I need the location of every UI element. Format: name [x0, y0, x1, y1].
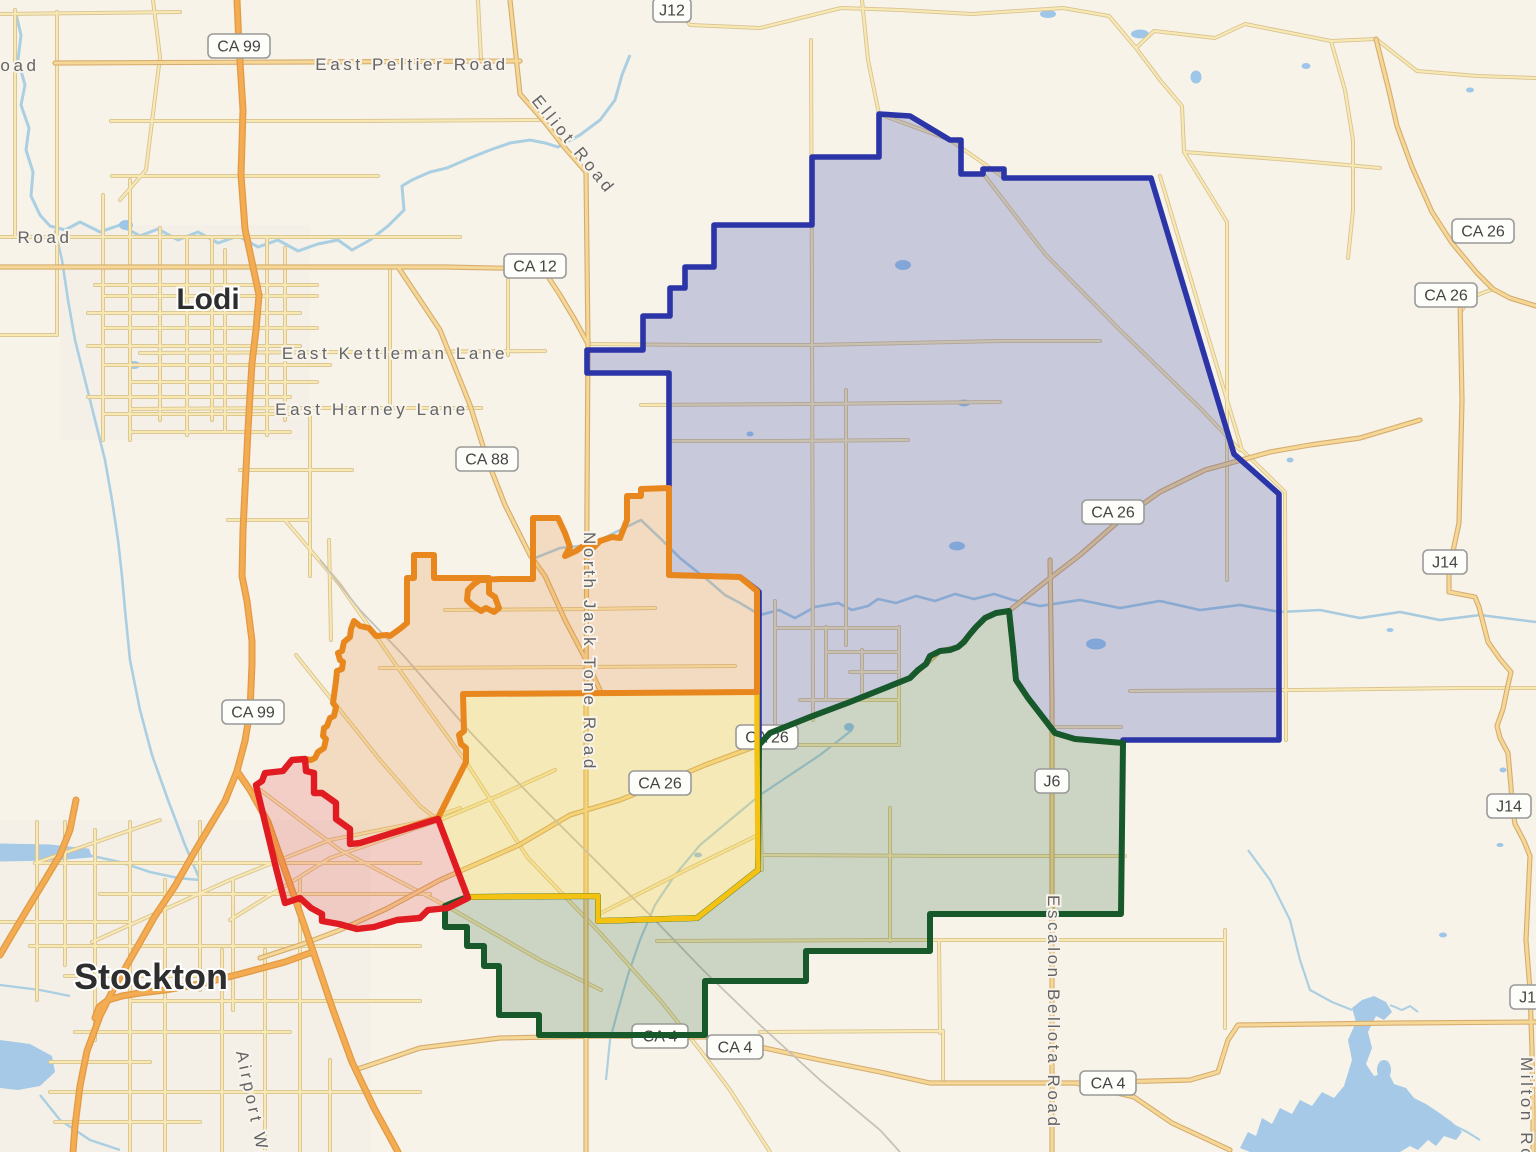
svg-text:Escalon Bellota Road: Escalon Bellota Road	[1044, 895, 1063, 1130]
svg-text:Road: Road	[17, 228, 72, 247]
svg-text:CA 26: CA 26	[1091, 505, 1135, 522]
svg-text:J12: J12	[659, 3, 685, 20]
svg-text:J6: J6	[1044, 774, 1061, 791]
svg-text:North Jack Tone Road: North Jack Tone Road	[580, 532, 599, 772]
svg-text:CA 26: CA 26	[638, 776, 682, 793]
svg-text:East Peltier Road: East Peltier Road	[315, 55, 509, 74]
svg-text:J14: J14	[1519, 990, 1536, 1007]
svg-text:CA 99: CA 99	[231, 705, 275, 722]
svg-text:CA 4: CA 4	[1091, 1076, 1126, 1093]
svg-text:CA 12: CA 12	[513, 259, 557, 276]
svg-text:CA 88: CA 88	[465, 452, 509, 469]
svg-text:J14: J14	[1432, 555, 1458, 572]
svg-text:Milton Road: Milton Road	[1517, 1057, 1536, 1152]
svg-text:CA 26: CA 26	[1461, 224, 1505, 241]
svg-text:Stockton: Stockton	[74, 956, 228, 997]
svg-text:oad: oad	[0, 56, 39, 75]
svg-text:Lodi: Lodi	[176, 283, 239, 316]
svg-text:East Harney Lane: East Harney Lane	[275, 400, 469, 419]
svg-text:CA 4: CA 4	[718, 1040, 753, 1057]
svg-text:CA 26: CA 26	[1424, 288, 1468, 305]
svg-text:East Kettleman Lane: East Kettleman Lane	[282, 344, 508, 363]
svg-text:CA 99: CA 99	[217, 39, 261, 56]
svg-text:J14: J14	[1496, 799, 1522, 816]
